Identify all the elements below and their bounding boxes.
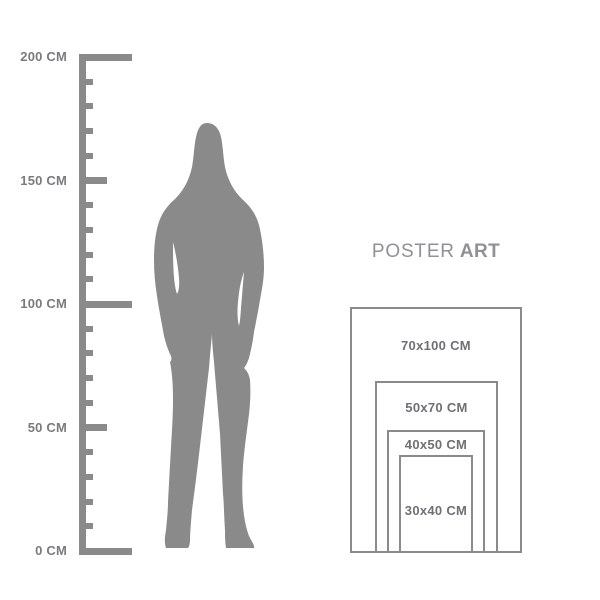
ruler-minor-tick: [79, 153, 93, 159]
ruler-minor-tick: [79, 103, 93, 109]
ruler-label-0cm: 0 CM: [0, 542, 67, 560]
ruler-minor-tick: [79, 202, 93, 208]
brand-title: POSTERART: [336, 241, 536, 263]
standing-woman-silhouette: [140, 110, 290, 560]
ruler-label-100cm: 100 CM: [0, 295, 67, 313]
ruler-minor-tick: [79, 449, 93, 455]
ruler-minor-tick: [79, 474, 93, 480]
ruler-minor-tick: [79, 227, 93, 233]
ruler-minor-tick: [79, 400, 93, 406]
brand-word-art: ART: [460, 241, 500, 262]
poster-size-label-50x70: 50x70 CM: [375, 400, 498, 416]
ruler-major-tick: [79, 301, 132, 308]
ruler-major-tick: [79, 54, 132, 61]
ruler-minor-tick: [79, 350, 93, 356]
ruler-label-150cm: 150 CM: [0, 172, 67, 190]
poster-size-label-70x100: 70x100 CM: [350, 338, 522, 354]
ruler-major-tick: [79, 548, 132, 555]
brand-word-poster: POSTER: [372, 241, 455, 262]
poster-size-guide-diagram: 200 CM150 CM100 CM50 CM0 CM POSTERART 70…: [0, 0, 600, 600]
ruler-medium-tick: [79, 177, 107, 184]
poster-size-label-40x50: 40x50 CM: [387, 437, 485, 453]
ruler-minor-tick: [79, 252, 93, 258]
ruler-minor-tick: [79, 79, 93, 85]
poster-size-label-30x40: 30x40 CM: [399, 503, 473, 519]
ruler-label-200cm: 200 CM: [0, 48, 67, 66]
ruler-minor-tick: [79, 523, 93, 529]
ruler-medium-tick: [79, 424, 107, 431]
ruler-minor-tick: [79, 375, 93, 381]
woman-silhouette-path: [154, 123, 264, 548]
ruler-minor-tick: [79, 499, 93, 505]
ruler-minor-tick: [79, 276, 93, 282]
ruler-minor-tick: [79, 326, 93, 332]
ruler-minor-tick: [79, 128, 93, 134]
ruler-label-50cm: 50 CM: [0, 419, 67, 437]
